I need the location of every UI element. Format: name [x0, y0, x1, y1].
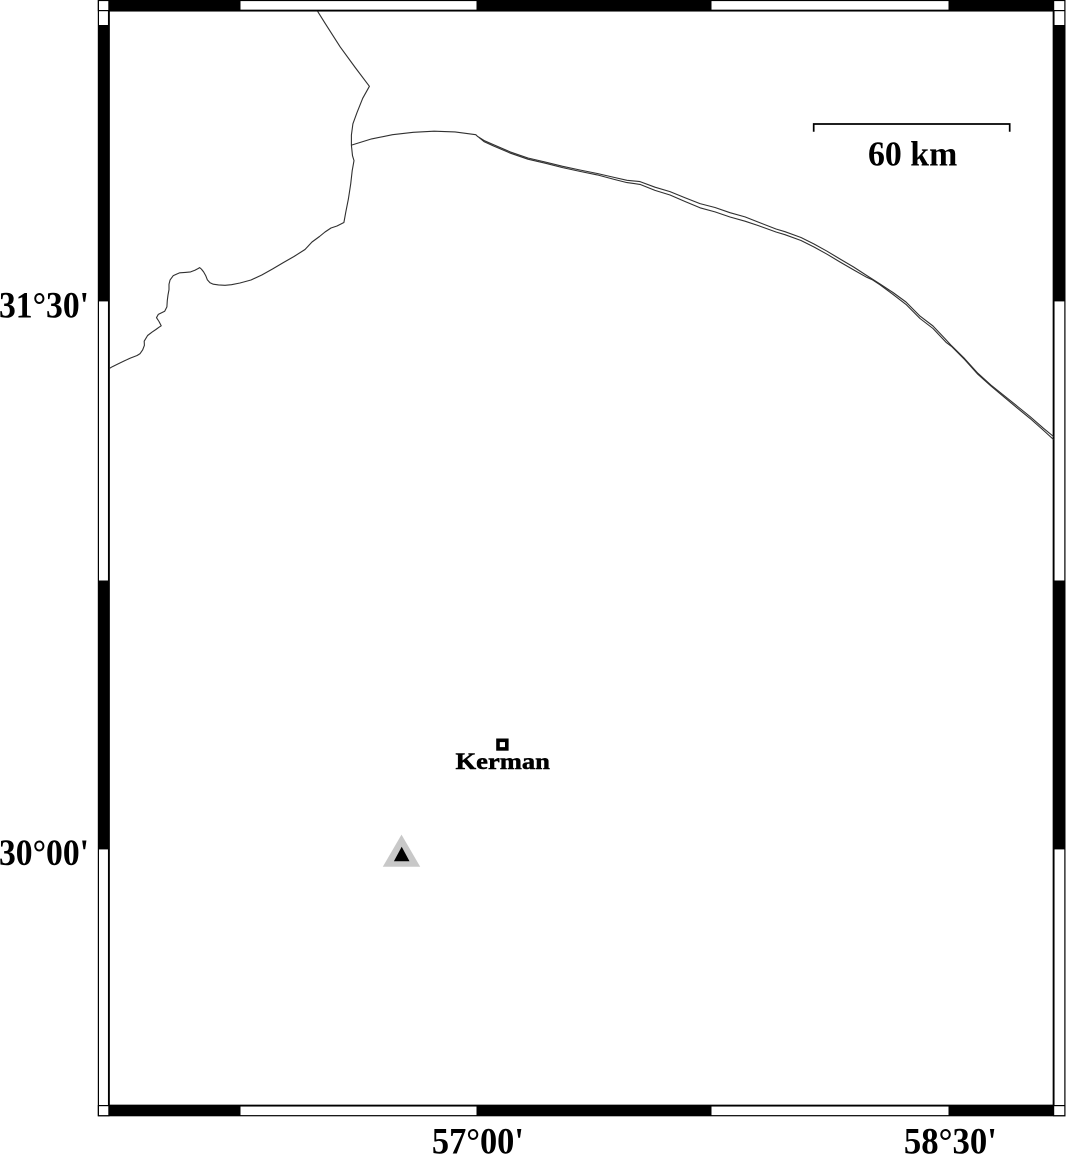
svg-text:Kerman: Kerman [456, 749, 550, 775]
svg-text:31°30': 31°30' [0, 286, 89, 327]
svg-text:58°30': 58°30' [904, 1121, 997, 1154]
svg-text:57°00': 57°00' [432, 1121, 524, 1154]
svg-text:60 km: 60 km [868, 135, 957, 174]
svg-text:30°00': 30°00' [0, 833, 89, 874]
